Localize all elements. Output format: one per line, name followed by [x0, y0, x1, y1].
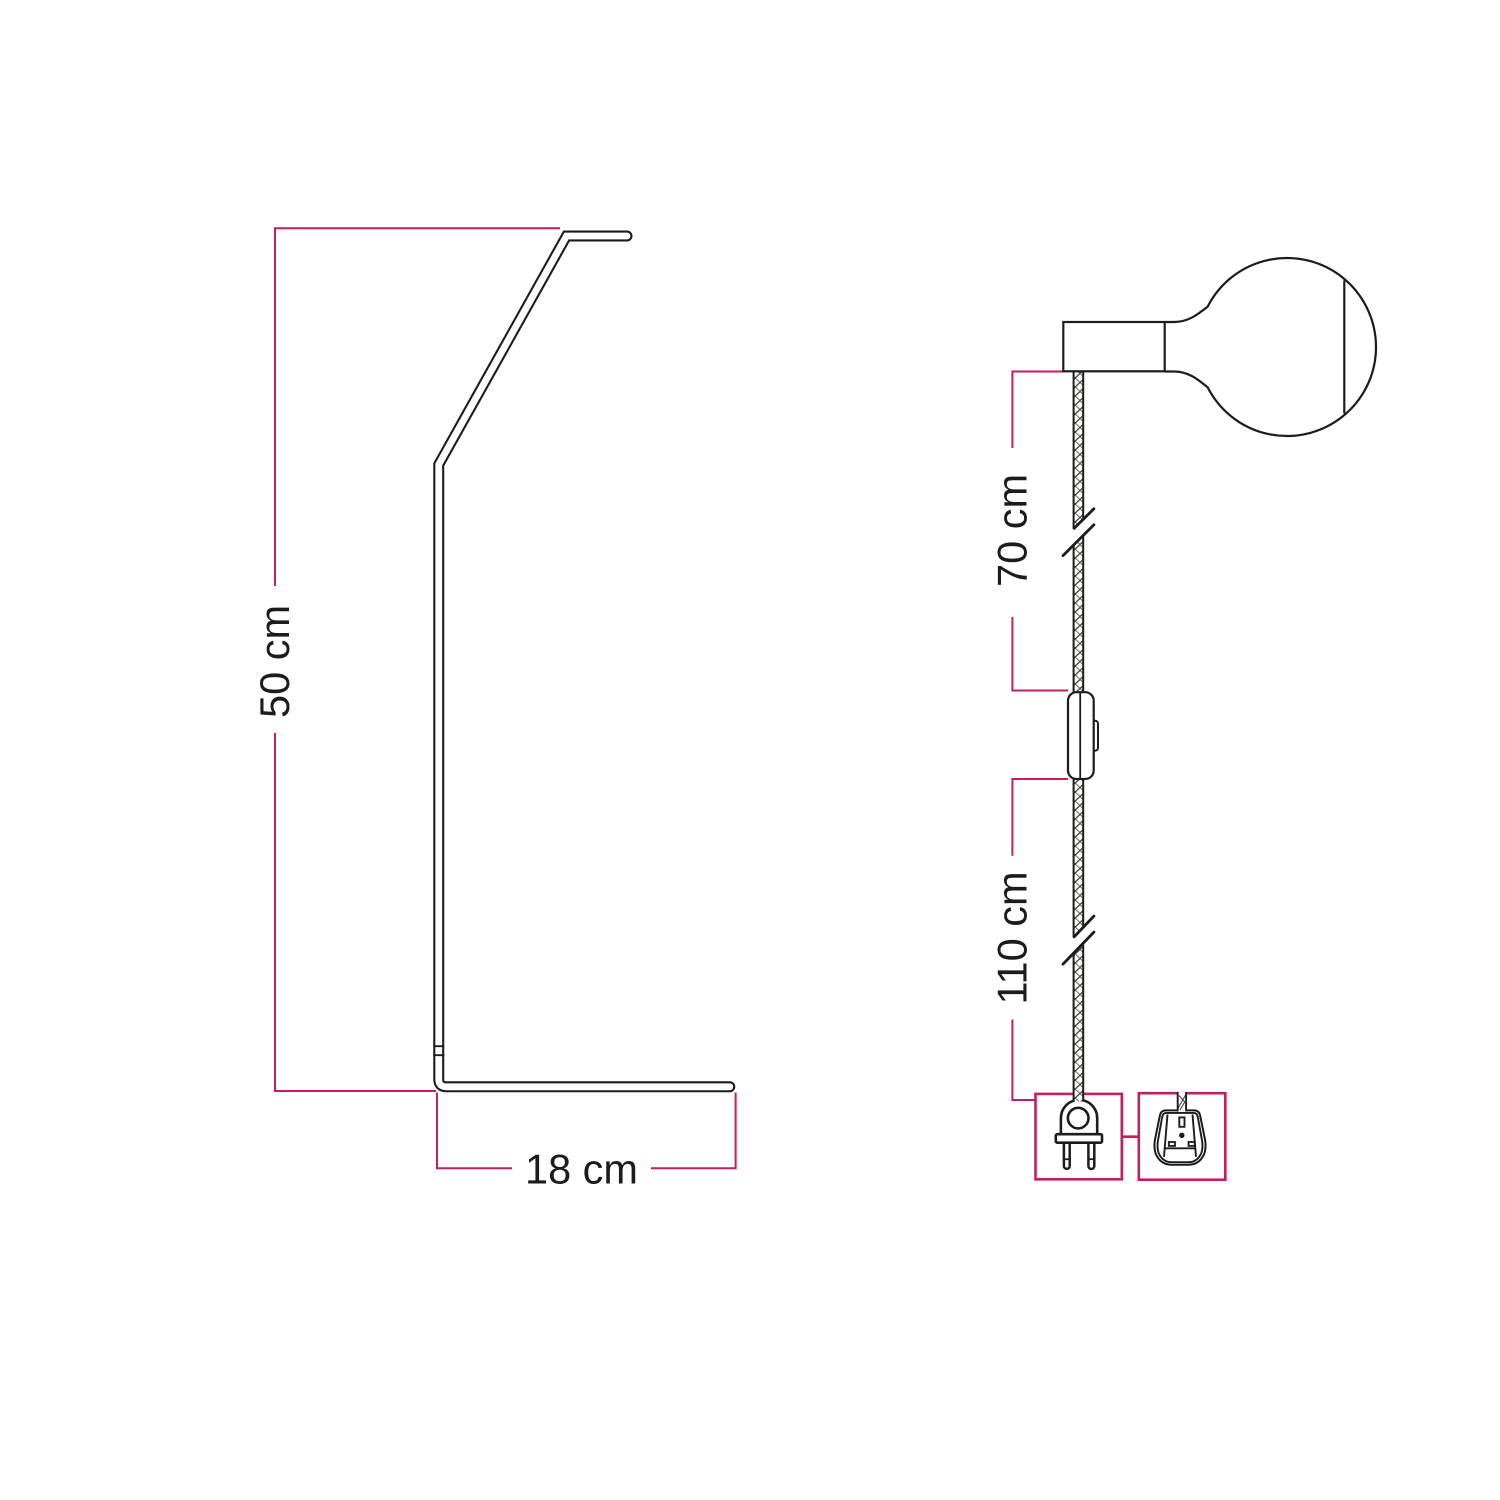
svg-text:110 cm: 110 cm: [988, 871, 1035, 1004]
svg-text:18 cm: 18 cm: [525, 1145, 638, 1192]
svg-text:50 cm: 50 cm: [251, 605, 298, 718]
svg-text:70 cm: 70 cm: [988, 474, 1035, 587]
